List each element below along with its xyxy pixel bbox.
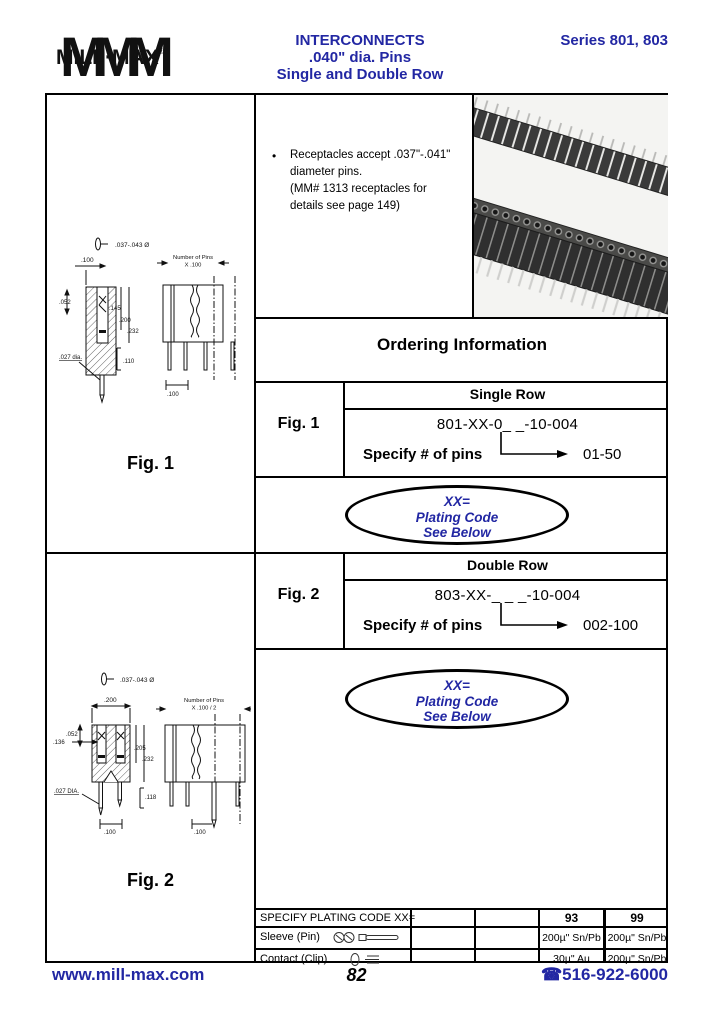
fig1-dim-d4: .110 [123, 359, 135, 365]
double-row-elbow-arrow [495, 601, 581, 633]
divider [254, 476, 666, 478]
divider [254, 95, 256, 961]
fig1-pin-dia-label: .037-.043 Ø [115, 242, 149, 249]
bullet-icon: • [272, 148, 276, 165]
fig2-dim-d2: .205 [134, 746, 146, 752]
fig1-dim-bottom: .100 [167, 392, 179, 398]
note-line: diameter pins. [290, 164, 472, 181]
fig1-pins-note2: X .100 [185, 263, 202, 269]
plating-code-note-1: XX= Plating Code See Below [345, 485, 569, 545]
fig2-dim-left: .052 [66, 732, 78, 738]
page-title-line2: .040" dia. Pins [0, 49, 720, 66]
fig1-dim-left: .052 [59, 300, 71, 306]
plating-note-line2: Plating Code [348, 694, 566, 710]
plating-col-99: 99 [606, 911, 668, 925]
sleeve-pin-icon [332, 930, 406, 945]
fig2-dim-d1: .136 [53, 740, 65, 746]
divider [47, 552, 666, 554]
fig1-caption: Fig. 1 [47, 453, 254, 474]
fig1-dim-d3: .232 [127, 329, 139, 335]
fig1-dim-top: .100 [81, 257, 94, 264]
fig2-caption: Fig. 2 [47, 870, 254, 891]
single-row-fig-label: Fig. 1 [254, 415, 343, 433]
single-row-elbow-arrow [495, 430, 581, 462]
fig2-dim-d3: .232 [142, 757, 154, 763]
plating-table-title: SPECIFY PLATING CODE XX= [260, 912, 415, 924]
double-row-header: Double Row [345, 557, 670, 573]
pin-strips-photo [474, 95, 668, 317]
plating-sleeve-93: 200µ" Sn/Pb [540, 932, 603, 944]
plating-contact-99: 200µ" Sn/Pb [606, 953, 668, 965]
plating-row-sleeve-label: Sleeve (Pin) [260, 931, 320, 943]
fig1-drawing-svg: .037-.043 Ø .100 .052 .145 .200 .232 .02… [59, 230, 251, 415]
fig1-dim-d1: .145 [109, 306, 121, 312]
footer-phone-number: 516-922-6000 [562, 965, 668, 984]
catalog-page: { "header": { "logo_mmm": "MMM", "logo_t… [0, 0, 720, 1012]
ordering-information-title: Ordering Information [254, 335, 670, 355]
divider [254, 381, 666, 383]
fig2-drawing: .037-.043 Ø .200 .052 .136 .205 .232 .02… [52, 662, 252, 845]
fig2-dim-top: .200 [104, 697, 117, 704]
double-row-specify-label: Specify # of pins [363, 617, 482, 634]
fig2-dim-dia: .027 DIA. [54, 789, 79, 795]
fig2-dim-bottom-left: .100 [104, 830, 116, 836]
single-row-pin-range: 01-50 [583, 446, 621, 463]
double-row-pin-range: 002-100 [583, 617, 638, 634]
plating-row-contact-label: Contact (Clip) [260, 953, 327, 965]
plating-note-line3: See Below [348, 525, 566, 541]
plating-note-line3: See Below [348, 709, 566, 725]
phone-icon: ☎ [541, 965, 562, 984]
fig1-pins-note1: Number of Pins [173, 255, 213, 261]
single-row-header: Single Row [345, 386, 670, 402]
note-line: (MM# 1313 receptacles for [290, 181, 472, 198]
plating-note-line1: XX= [348, 494, 566, 510]
single-row-content: 801-XX-0_ _-10-004 Specify # of pins 01-… [345, 408, 670, 476]
double-row-content: 803-XX-_ _ _-10-004 Specify # of pins 00… [345, 579, 670, 647]
fig2-dim-d4: .118 [145, 795, 157, 801]
plating-note-line1: XX= [348, 678, 566, 694]
page-title-line3: Single and Double Row [0, 66, 720, 83]
receptacle-note: • Receptacles accept .037"-.041" diamete… [272, 147, 472, 215]
fig2-pin-dia-label: .037-.043 Ø [120, 677, 154, 684]
plating-contact-93: 30µ" Au [540, 953, 603, 965]
single-row-specify-label: Specify # of pins [363, 446, 482, 463]
footer-phone: ☎516-922-6000 [541, 965, 668, 985]
divider [474, 908, 476, 961]
fig2-pins-note2: X .100 / 2 [192, 706, 217, 712]
fig2-dim-bottom-right: .100 [194, 830, 206, 836]
double-row-fig-label: Fig. 2 [254, 586, 343, 604]
plating-sleeve-99: 200µ" Sn/Pb [606, 932, 668, 944]
fig1-dim-dia: .027 dia. [59, 355, 82, 361]
product-photo [474, 95, 668, 317]
plating-note-line2: Plating Code [348, 510, 566, 526]
fig1-dim-d2: .200 [119, 318, 131, 324]
series-label: Series 801, 803 [560, 32, 668, 49]
main-table-frame: • Receptacles accept .037"-.041" diamete… [45, 93, 668, 963]
fig1-drawing: .037-.043 Ø .100 .052 .145 .200 .232 .02… [59, 230, 251, 420]
divider [254, 317, 666, 319]
divider [254, 648, 666, 650]
plating-col-93: 93 [540, 911, 603, 925]
fig2-drawing-svg: .037-.043 Ø .200 .052 .136 .205 .232 .02… [52, 662, 252, 840]
note-line: details see page 149) [290, 198, 472, 215]
fig2-pins-note1: Number of Pins [184, 698, 224, 704]
note-line: Receptacles accept .037"-.041" [290, 147, 472, 164]
plating-code-note-2: XX= Plating Code See Below [345, 669, 569, 729]
